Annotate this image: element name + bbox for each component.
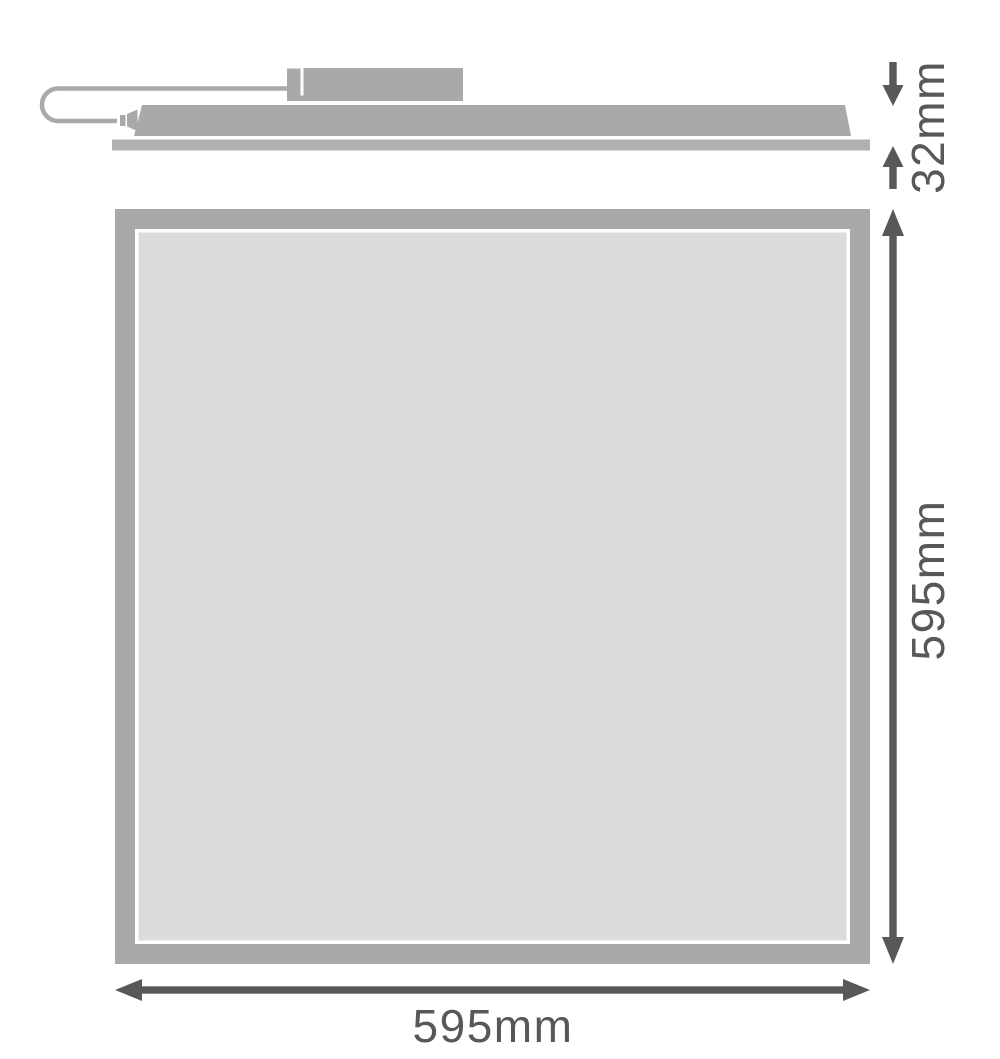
dimension-drawing — [0, 0, 1000, 1059]
panel-light-surface — [139, 233, 847, 941]
width-label: 595mm — [413, 1003, 574, 1049]
thickness-arrow-down-icon — [883, 62, 904, 106]
front-view — [115, 209, 904, 1001]
thickness-label: 32mm — [905, 60, 951, 194]
width-dimension-arrow — [115, 979, 870, 1001]
plug-tip — [120, 115, 126, 126]
panel-back-plate — [112, 140, 870, 151]
panel-side-profile — [134, 105, 851, 136]
thickness-arrow-up-icon — [883, 146, 904, 189]
driver-box — [304, 68, 464, 101]
driver-cable-gland — [287, 69, 301, 102]
dimension-drawing-page: 32mm 595mm 595mm — [0, 0, 1000, 1059]
plug-body — [127, 110, 138, 132]
height-dimension-arrow — [882, 209, 904, 964]
driver-seam-bridge — [299, 96, 305, 102]
height-label: 595mm — [905, 500, 951, 661]
side-view — [42, 62, 904, 189]
